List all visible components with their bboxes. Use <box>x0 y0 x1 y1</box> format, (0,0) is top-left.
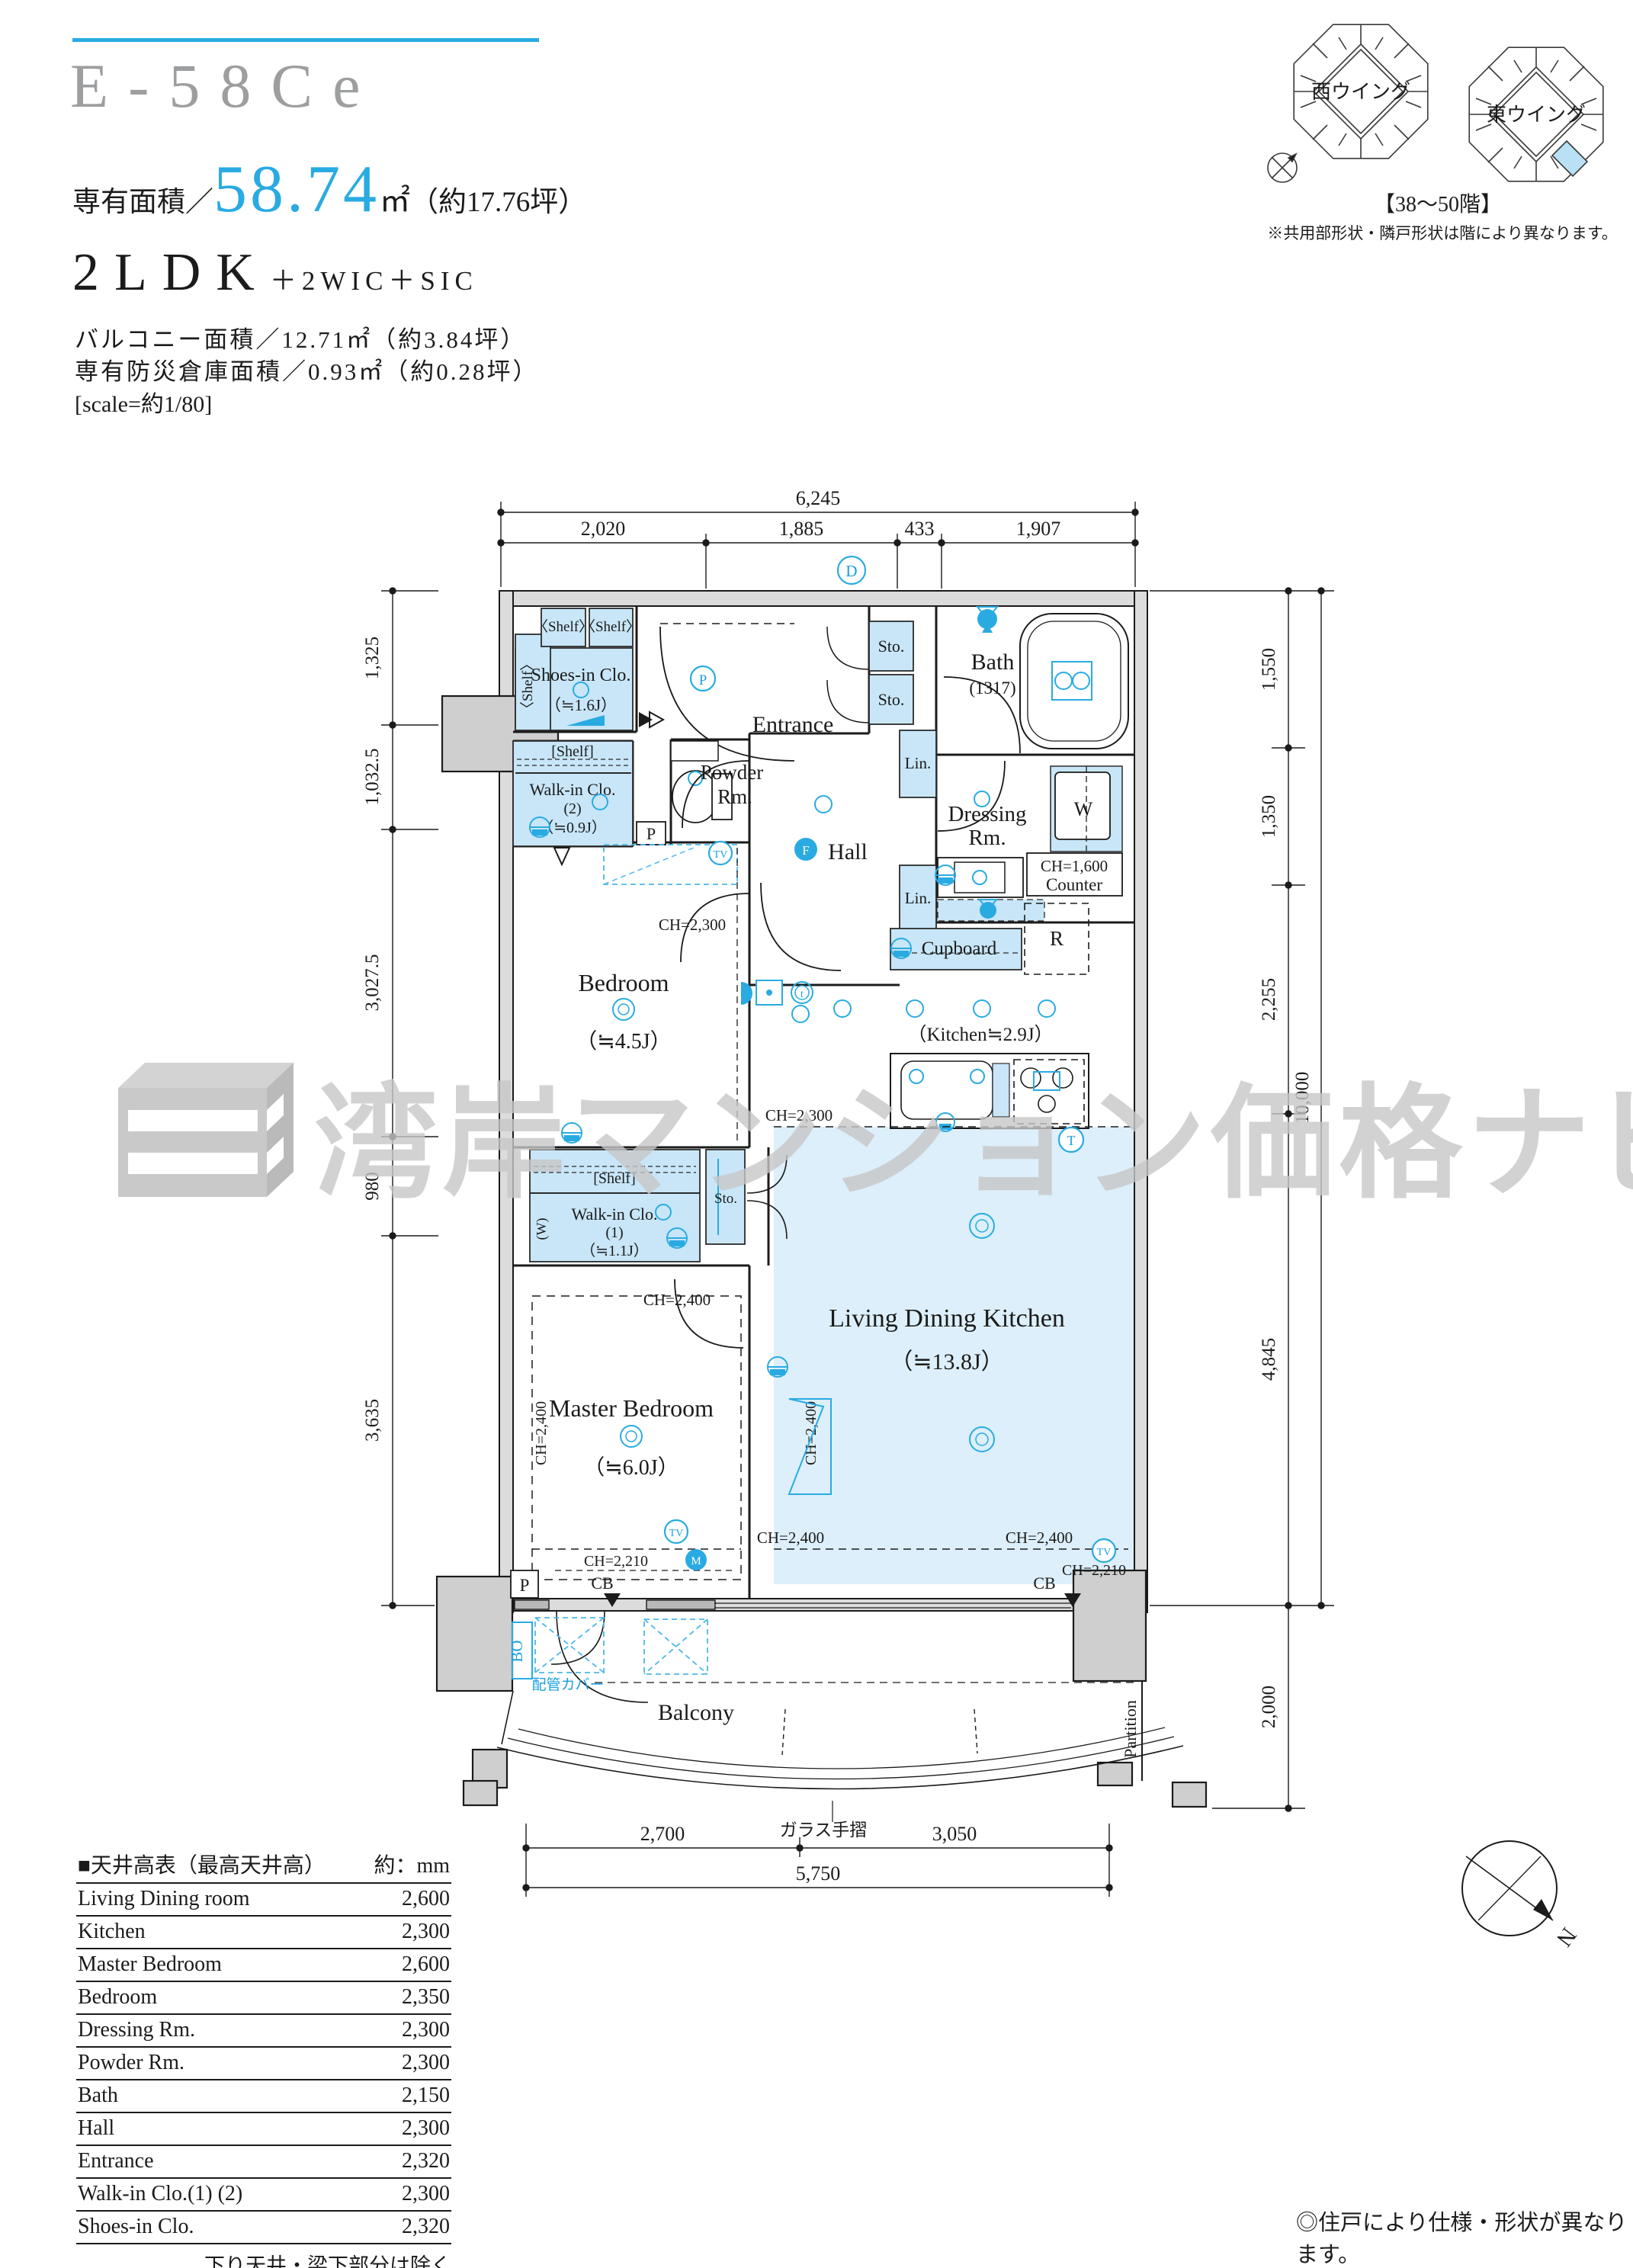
fixture-icon <box>562 1123 582 1143</box>
dim-left-1: 1,325 <box>362 637 383 679</box>
area-tsubo: （約17.76坪） <box>410 187 586 218</box>
wic1-label: Walk-in Clo. <box>571 1205 657 1224</box>
ch-label: CH=2,400 <box>533 1401 550 1465</box>
row-value: 2,300 <box>402 2017 450 2043</box>
unit-code: E-58Ce <box>70 50 380 122</box>
exclusive-area: 専有面積／58.74㎡（約17.76坪） <box>72 151 586 228</box>
ch-label: CH=2,400 <box>803 1401 820 1465</box>
room-shoes-in-closet: 〈Shelf〉 〈Shelf〉 〈Shelf〉 Shoes-in Clo. （≒… <box>515 608 663 730</box>
balcony-label: Balcony <box>658 1700 734 1725</box>
pipe-space-label: P <box>520 1576 530 1595</box>
layout-type: 2LDK＋2WIC＋SIC <box>72 242 478 303</box>
row-value: 2,350 <box>402 1984 450 2010</box>
bath-label: Bath <box>971 650 1015 675</box>
cb-label: CB <box>591 1573 613 1593</box>
row-label: Hall <box>78 2116 114 2141</box>
dim-right-1: 1,550 <box>1259 648 1279 691</box>
table-row: Bath2,150 <box>76 2080 451 2113</box>
table-row: Kitchen2,300 <box>76 1917 451 1949</box>
dim-left-4: 980 <box>362 1172 383 1201</box>
pipe-cover-label: 配管カバー <box>531 1676 604 1693</box>
hall-label: Hall <box>828 839 868 865</box>
keyplan: 西ウイング 東ウイング 【38～50階】 ※共用部形状・隣戸形状は階により異なり… <box>1243 4 1633 255</box>
ceiling-height-table: ■天井高表（最高天井高） 約：mm Living Dining room2,60… <box>76 1851 451 2268</box>
bedroom-size: （≒4.5J） <box>576 1029 671 1054</box>
ch-label: CH=2,300 <box>659 916 726 934</box>
row-value: 2,320 <box>402 2214 450 2240</box>
table-row: Shoes-in Clo.2,320 <box>76 2212 451 2244</box>
kitchen-label: （Kitchen≒2.9J） <box>907 1024 1053 1045</box>
watermark-logo-icon <box>84 1031 305 1221</box>
shelf-label: [Shelf] <box>551 743 594 760</box>
wic2-no: (2) <box>563 800 581 817</box>
row-label: Bedroom <box>78 1984 157 2010</box>
pipe-space-label: P <box>646 824 656 843</box>
disaster-storage-note: 専有防災倉庫面積／0.93㎡（約0.28坪） <box>75 352 539 387</box>
shelf-label: [Shelf] <box>593 1170 636 1187</box>
room-hall: Hall F t <box>741 796 868 1022</box>
marker-tv: TV <box>714 849 728 861</box>
wic1-size: （≒1.1J） <box>580 1242 649 1259</box>
compass-north: N <box>1551 1923 1581 1951</box>
dim-top-2: 1,885 <box>779 518 824 540</box>
storage-linen: Sto. Sto. Lin. Lin. <box>827 621 936 932</box>
sto-label: Sto. <box>878 637 905 656</box>
ch-label: CH=2,210 <box>584 1553 648 1570</box>
washer-label: W <box>1074 798 1093 820</box>
row-value: 2,300 <box>402 2050 450 2076</box>
layout-suffix: ＋2WIC＋SIC <box>270 266 478 296</box>
dressing-label-1: Dressing <box>948 802 1026 826</box>
dimension-top <box>498 502 1138 589</box>
dim-bottom-total: 5,750 <box>796 1862 841 1885</box>
wic1-w: (W) <box>534 1218 550 1240</box>
lin-label: Lin. <box>905 754 931 772</box>
counter-label: Counter <box>1046 875 1102 894</box>
accent-rule <box>72 38 539 42</box>
fridge-label: R <box>1050 927 1064 950</box>
bo-label: BO <box>508 1640 526 1662</box>
stove-icon <box>1014 1060 1084 1124</box>
marker-p: P <box>699 672 707 688</box>
dressing-label-2: Rm. <box>968 826 1006 850</box>
dim-left-2: 1,032.5 <box>362 749 383 806</box>
marker-m: M <box>691 1555 701 1567</box>
sto-label: Sto. <box>714 1191 737 1207</box>
row-label: Master Bedroom <box>78 1952 222 1978</box>
area-prefix: 専有面積／ <box>72 187 213 218</box>
dimension-right <box>1150 588 1334 1811</box>
table-title: ■天井高表（最高天井高） <box>78 1853 326 1879</box>
row-label: Shoes-in Clo. <box>78 2214 194 2240</box>
area-value: 58.74 <box>213 152 380 226</box>
east-wing-label: 東ウイング <box>1487 104 1586 126</box>
room-dressing: W CH=1,600 Counter Dressing Rm. <box>935 761 1122 921</box>
bedroom-label: Bedroom <box>578 969 669 996</box>
ldk-label: Living Dining Kitchen <box>829 1304 1065 1333</box>
row-value: 2,150 <box>402 2083 450 2109</box>
glass-rail-label: ガラス手摺 <box>780 1820 868 1840</box>
dim-right-3: 2,255 <box>1259 978 1279 1021</box>
powder-label-1: Powder <box>701 761 764 784</box>
marker-th: T <box>1067 1133 1076 1148</box>
dim-top-1: 2,020 <box>581 518 626 540</box>
ch-label: CH=2,400 <box>757 1529 824 1547</box>
entrance-label: Entrance <box>752 712 834 737</box>
bath-fan-icon <box>977 607 997 633</box>
row-value: 2,600 <box>402 1886 450 1912</box>
room-kitchen: Cupboard R （Kitchen≒2.9J） CH=2,3 <box>765 903 1134 1152</box>
master-label: Master Bedroom <box>549 1394 714 1422</box>
marker-d: D <box>845 562 857 580</box>
row-label: Powder Rm. <box>78 2050 184 2076</box>
row-label: Walk-in Clo.(1) (2) <box>78 2181 242 2207</box>
row-label: Entrance <box>78 2148 154 2174</box>
wic1-no: (1) <box>605 1224 623 1241</box>
room-bedroom: TV CH=2,300 Bedroom （≒4.5J） <box>562 842 749 1143</box>
counter-ch-label: CH=1,600 <box>1041 857 1108 875</box>
table-row: Dressing Rm.2,300 <box>76 2015 451 2048</box>
table-header: ■天井高表（最高天井高） 約：mm <box>76 1851 451 1884</box>
room-bath: Bath (1317) <box>944 607 1128 753</box>
bath-size: (1317) <box>969 678 1015 698</box>
table-row: Powder Rm.2,300 <box>76 2048 451 2080</box>
table-row: Bedroom2,350 <box>76 1982 451 2015</box>
dim-left-3: 3,027.5 <box>362 954 383 1012</box>
dim-top-4: 1,907 <box>1016 518 1061 540</box>
compass-icon: N <box>1445 1818 1582 1971</box>
dim-balcony-depth: 2,000 <box>1259 1686 1279 1728</box>
floors-range: 【38～50階】 <box>1374 192 1502 217</box>
row-label: Kitchen <box>78 1919 146 1945</box>
partition-label: Partition <box>1121 1700 1140 1758</box>
room-wic2: [Shelf] Walk-in Clo. (2) （≒0.9J） <box>513 741 633 865</box>
table-footnote: 下り天井・梁下部分は除く <box>76 2244 451 2268</box>
dim-bottom-1: 2,700 <box>640 1823 685 1845</box>
area-unit: ㎡ <box>380 184 410 218</box>
mini-compass-icon <box>1268 153 1297 182</box>
sto-label: Sto. <box>878 690 905 709</box>
dim-top-3: 433 <box>905 518 935 540</box>
marker-tv: TV <box>669 1528 684 1539</box>
dim-right-2: 1,350 <box>1259 795 1279 838</box>
highlighted-unit <box>1552 141 1587 176</box>
fan-icon <box>980 900 996 919</box>
footer-note: ◎住戸により仕様・形状が異なります。 <box>1296 2205 1633 2268</box>
dim-top-total: 6,245 <box>796 487 841 509</box>
table-row: Entrance2,320 <box>76 2146 451 2179</box>
row-label: Bath <box>78 2083 118 2109</box>
dim-right-4: 4,845 <box>1259 1338 1279 1381</box>
marker-t: t <box>800 989 804 1000</box>
dim-bottom-2: 3,050 <box>932 1823 977 1845</box>
layout-main: 2LDK <box>72 243 270 302</box>
scale-note: [scale=約1/80] <box>75 385 212 419</box>
room-wic1: [Shelf] Walk-in Clo. (1) （≒1.1J） (W) Sto… <box>530 1150 787 1262</box>
room-entrance: Entrance D P <box>660 557 865 761</box>
master-size: （≒6.0J） <box>583 1455 679 1480</box>
marker-f: F <box>802 843 809 858</box>
floorplan-page: E-58Ce 専有面積／58.74㎡（約17.76坪） 2LDK＋2WIC＋SI… <box>0 0 1633 2268</box>
floorplan-drawing: 6,245 2,020 1,885 433 1,907 1,325 1,032.… <box>335 457 1372 1952</box>
ch-label: CH=2,210 <box>1062 1562 1126 1579</box>
dim-left-5: 3,635 <box>362 1399 383 1442</box>
lin-label: Lin. <box>905 889 931 907</box>
wic2-label: Walk-in Clo. <box>529 780 615 799</box>
table-row: Walk-in Clo.(1) (2)2,300 <box>76 2179 451 2212</box>
marker-tv: TV <box>1097 1547 1112 1558</box>
room-powder: Powder Rm. P <box>637 741 763 845</box>
table-row: Hall2,300 <box>76 2113 451 2146</box>
west-wing-label: 西ウイング <box>1311 81 1410 103</box>
shoes-closet-size: （≒1.6J） <box>545 696 617 714</box>
dim-right-total: 10,000 <box>1292 1072 1313 1124</box>
row-label: Living Dining room <box>78 1886 250 1912</box>
row-value: 2,300 <box>402 1919 450 1945</box>
row-value: 2,600 <box>402 1952 450 1978</box>
cupboard-label: Cupboard <box>922 938 997 959</box>
powder-label-2: Rm. <box>717 785 752 808</box>
ch-label: CH=2,400 <box>1006 1529 1073 1547</box>
ch-label: CH=2,300 <box>765 1106 833 1124</box>
shelf-label: 〈Shelf〉 <box>581 618 640 635</box>
cb-label: CB <box>1033 1573 1055 1593</box>
ldk-size: （≒13.8J） <box>890 1349 1003 1375</box>
table-row: Master Bedroom2,600 <box>76 1949 451 1982</box>
balcony-area-note: バルコニー面積／12.71㎡（約3.84坪） <box>75 320 526 354</box>
row-value: 2,300 <box>402 2116 450 2141</box>
keyplan-note: ※共用部形状・隣戸形状は階により異なります。 <box>1267 224 1617 242</box>
row-value: 2,320 <box>402 2148 450 2174</box>
row-label: Dressing Rm. <box>78 2017 195 2043</box>
table-unit: 約：mm <box>374 1853 450 1879</box>
table-row: Living Dining room2,600 <box>76 1884 451 1917</box>
row-value: 2,300 <box>402 2181 450 2207</box>
dimension-left <box>381 588 438 1609</box>
